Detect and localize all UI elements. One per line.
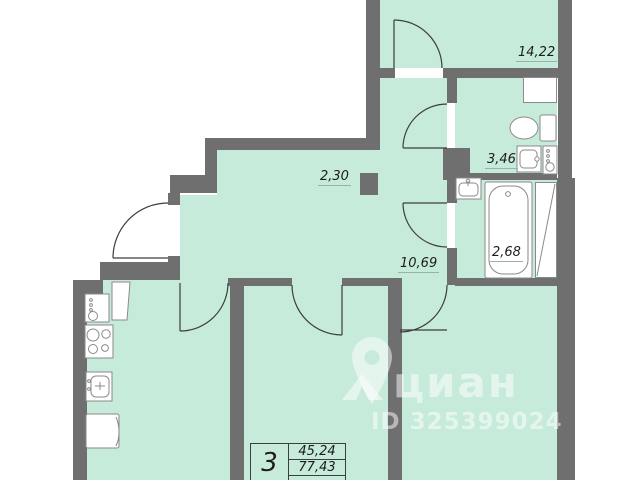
area-stamp-table: 3 45,24 77,43 [250, 443, 346, 480]
room-label-wc: 3,46 [485, 153, 518, 169]
wall-segment [447, 248, 457, 285]
wall-segment [230, 285, 244, 480]
wall-segment [360, 173, 378, 195]
total-area-value: 77,43 [289, 460, 345, 476]
door-opening [168, 205, 180, 256]
wall-segment [170, 175, 217, 193]
wall-segment [447, 78, 457, 103]
room-area-corridor [217, 150, 378, 195]
wall-segment [558, 178, 575, 192]
door-opening [447, 203, 455, 248]
wall-segment [205, 138, 366, 150]
room-label-hall: 10,69 [398, 257, 439, 273]
wall-segment [100, 262, 180, 280]
room-area-entry-zone [180, 195, 378, 278]
room-area-kitchen [87, 280, 230, 480]
room-label-bedroom: 14,22 [516, 46, 557, 62]
wall-segment [205, 138, 217, 175]
wall-segment [558, 0, 572, 192]
rooms-count: 3 [251, 444, 289, 480]
wall-segment [388, 278, 402, 480]
wall-segment [73, 280, 103, 297]
room-area-room-2 [402, 285, 560, 480]
wall-segment [228, 278, 292, 286]
living-area-value: 45,24 [289, 444, 345, 460]
vent-shaft-icon [535, 182, 557, 278]
doorway [180, 278, 230, 282]
doorway [292, 278, 342, 286]
wall-segment [168, 193, 180, 205]
room-label-corridor: 2,30 [318, 170, 351, 186]
doorway [402, 278, 447, 286]
room-area-hall [378, 78, 447, 278]
wall-segment [455, 278, 560, 286]
wall-segment [370, 68, 395, 78]
floor-plan: 14,22 2,30 3,46 10,69 2,68 3 45,24 77,43… [0, 0, 620, 480]
entry-door-arc [113, 203, 168, 258]
wc-cabinet [523, 77, 557, 103]
wall-segment [557, 178, 575, 480]
wall-segment [73, 297, 87, 480]
wall-segment [453, 173, 557, 180]
door-opening [447, 103, 455, 148]
area-row-partial [289, 476, 345, 480]
wall-segment [447, 180, 457, 203]
room-label-bath: 2,68 [490, 246, 523, 262]
